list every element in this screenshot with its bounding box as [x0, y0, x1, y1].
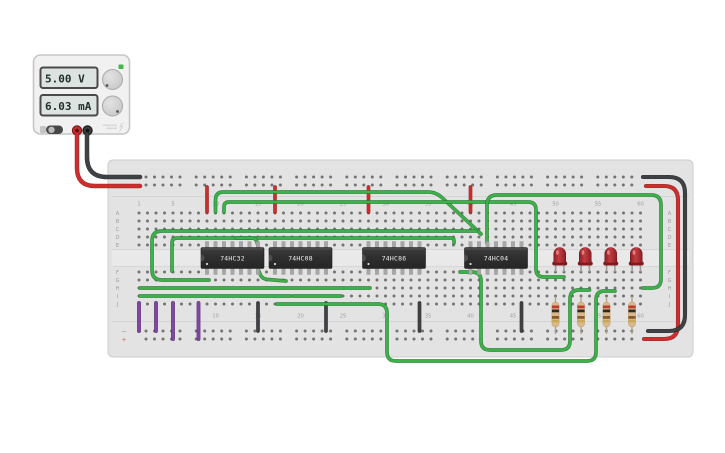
resistor-band [628, 320, 635, 322]
svg-text:G: G [115, 278, 119, 284]
svg-text:−: − [121, 327, 126, 335]
pin1-dot [274, 263, 276, 265]
svg-text:55: 55 [595, 202, 602, 208]
svg-text:+: + [121, 335, 126, 343]
circuit-canvas[interactable]: 1155101015152020252530303535404045455050… [0, 0, 725, 453]
svg-text:74HC86: 74HC86 [382, 255, 407, 263]
svg-text:50: 50 [552, 202, 559, 208]
svg-text:5.00 V: 5.00 V [45, 73, 85, 86]
svg-text:G: G [667, 278, 671, 284]
resistor-band [577, 306, 584, 309]
svg-text:40: 40 [467, 314, 474, 320]
resistor-band [603, 320, 610, 322]
svg-text:20: 20 [297, 314, 304, 320]
power-indicator [119, 65, 124, 70]
power-supply[interactable]: 5.00 V 6.03 mA [34, 55, 130, 135]
svg-text:C: C [668, 227, 672, 233]
resistor-band [628, 310, 635, 313]
svg-text:H: H [668, 286, 672, 292]
svg-text:60: 60 [637, 314, 644, 320]
resistor-band [603, 306, 610, 309]
voltage-display: 5.00 V [41, 68, 98, 89]
svg-text:B: B [668, 219, 672, 225]
svg-text:F: F [116, 270, 119, 276]
svg-text:D: D [116, 235, 120, 241]
resistor-band [552, 306, 559, 309]
svg-text:74HC04: 74HC04 [484, 255, 509, 263]
pin1-dot [206, 263, 208, 265]
svg-text:A: A [116, 211, 120, 217]
resistor-band [603, 316, 610, 319]
resistor-band [552, 310, 559, 313]
resistor-band [603, 310, 610, 313]
pin1-dot [469, 263, 471, 265]
resistor-band [628, 306, 635, 309]
svg-text:5: 5 [171, 202, 174, 208]
current-knob[interactable] [103, 96, 123, 116]
svg-text:74HC32: 74HC32 [220, 255, 245, 263]
resistor-band [552, 320, 559, 322]
svg-text:E: E [116, 243, 119, 249]
svg-text:C: C [116, 227, 120, 233]
svg-text:A: A [668, 211, 672, 217]
svg-text:B: B [116, 219, 120, 225]
svg-text:1: 1 [137, 202, 140, 208]
svg-text:F: F [668, 270, 671, 276]
svg-text:60: 60 [637, 202, 644, 208]
svg-text:D: D [668, 235, 672, 241]
resistor-band [577, 320, 584, 322]
current-display: 6.03 mA [41, 95, 98, 116]
svg-text:H: H [116, 286, 120, 292]
resistor-band [628, 316, 635, 319]
resistor-band [577, 316, 584, 319]
svg-text:25: 25 [340, 314, 347, 320]
pin1-dot [367, 263, 369, 265]
svg-text:10: 10 [212, 314, 219, 320]
svg-text:74HC08: 74HC08 [288, 255, 313, 263]
svg-text:6.03 mA: 6.03 mA [45, 100, 92, 113]
resistor-band [577, 310, 584, 313]
svg-text:35: 35 [425, 314, 432, 320]
voltage-knob[interactable] [103, 70, 123, 90]
power-switch[interactable] [40, 126, 63, 135]
svg-text:E: E [668, 243, 671, 249]
svg-text:45: 45 [510, 314, 517, 320]
resistor-band [552, 316, 559, 319]
